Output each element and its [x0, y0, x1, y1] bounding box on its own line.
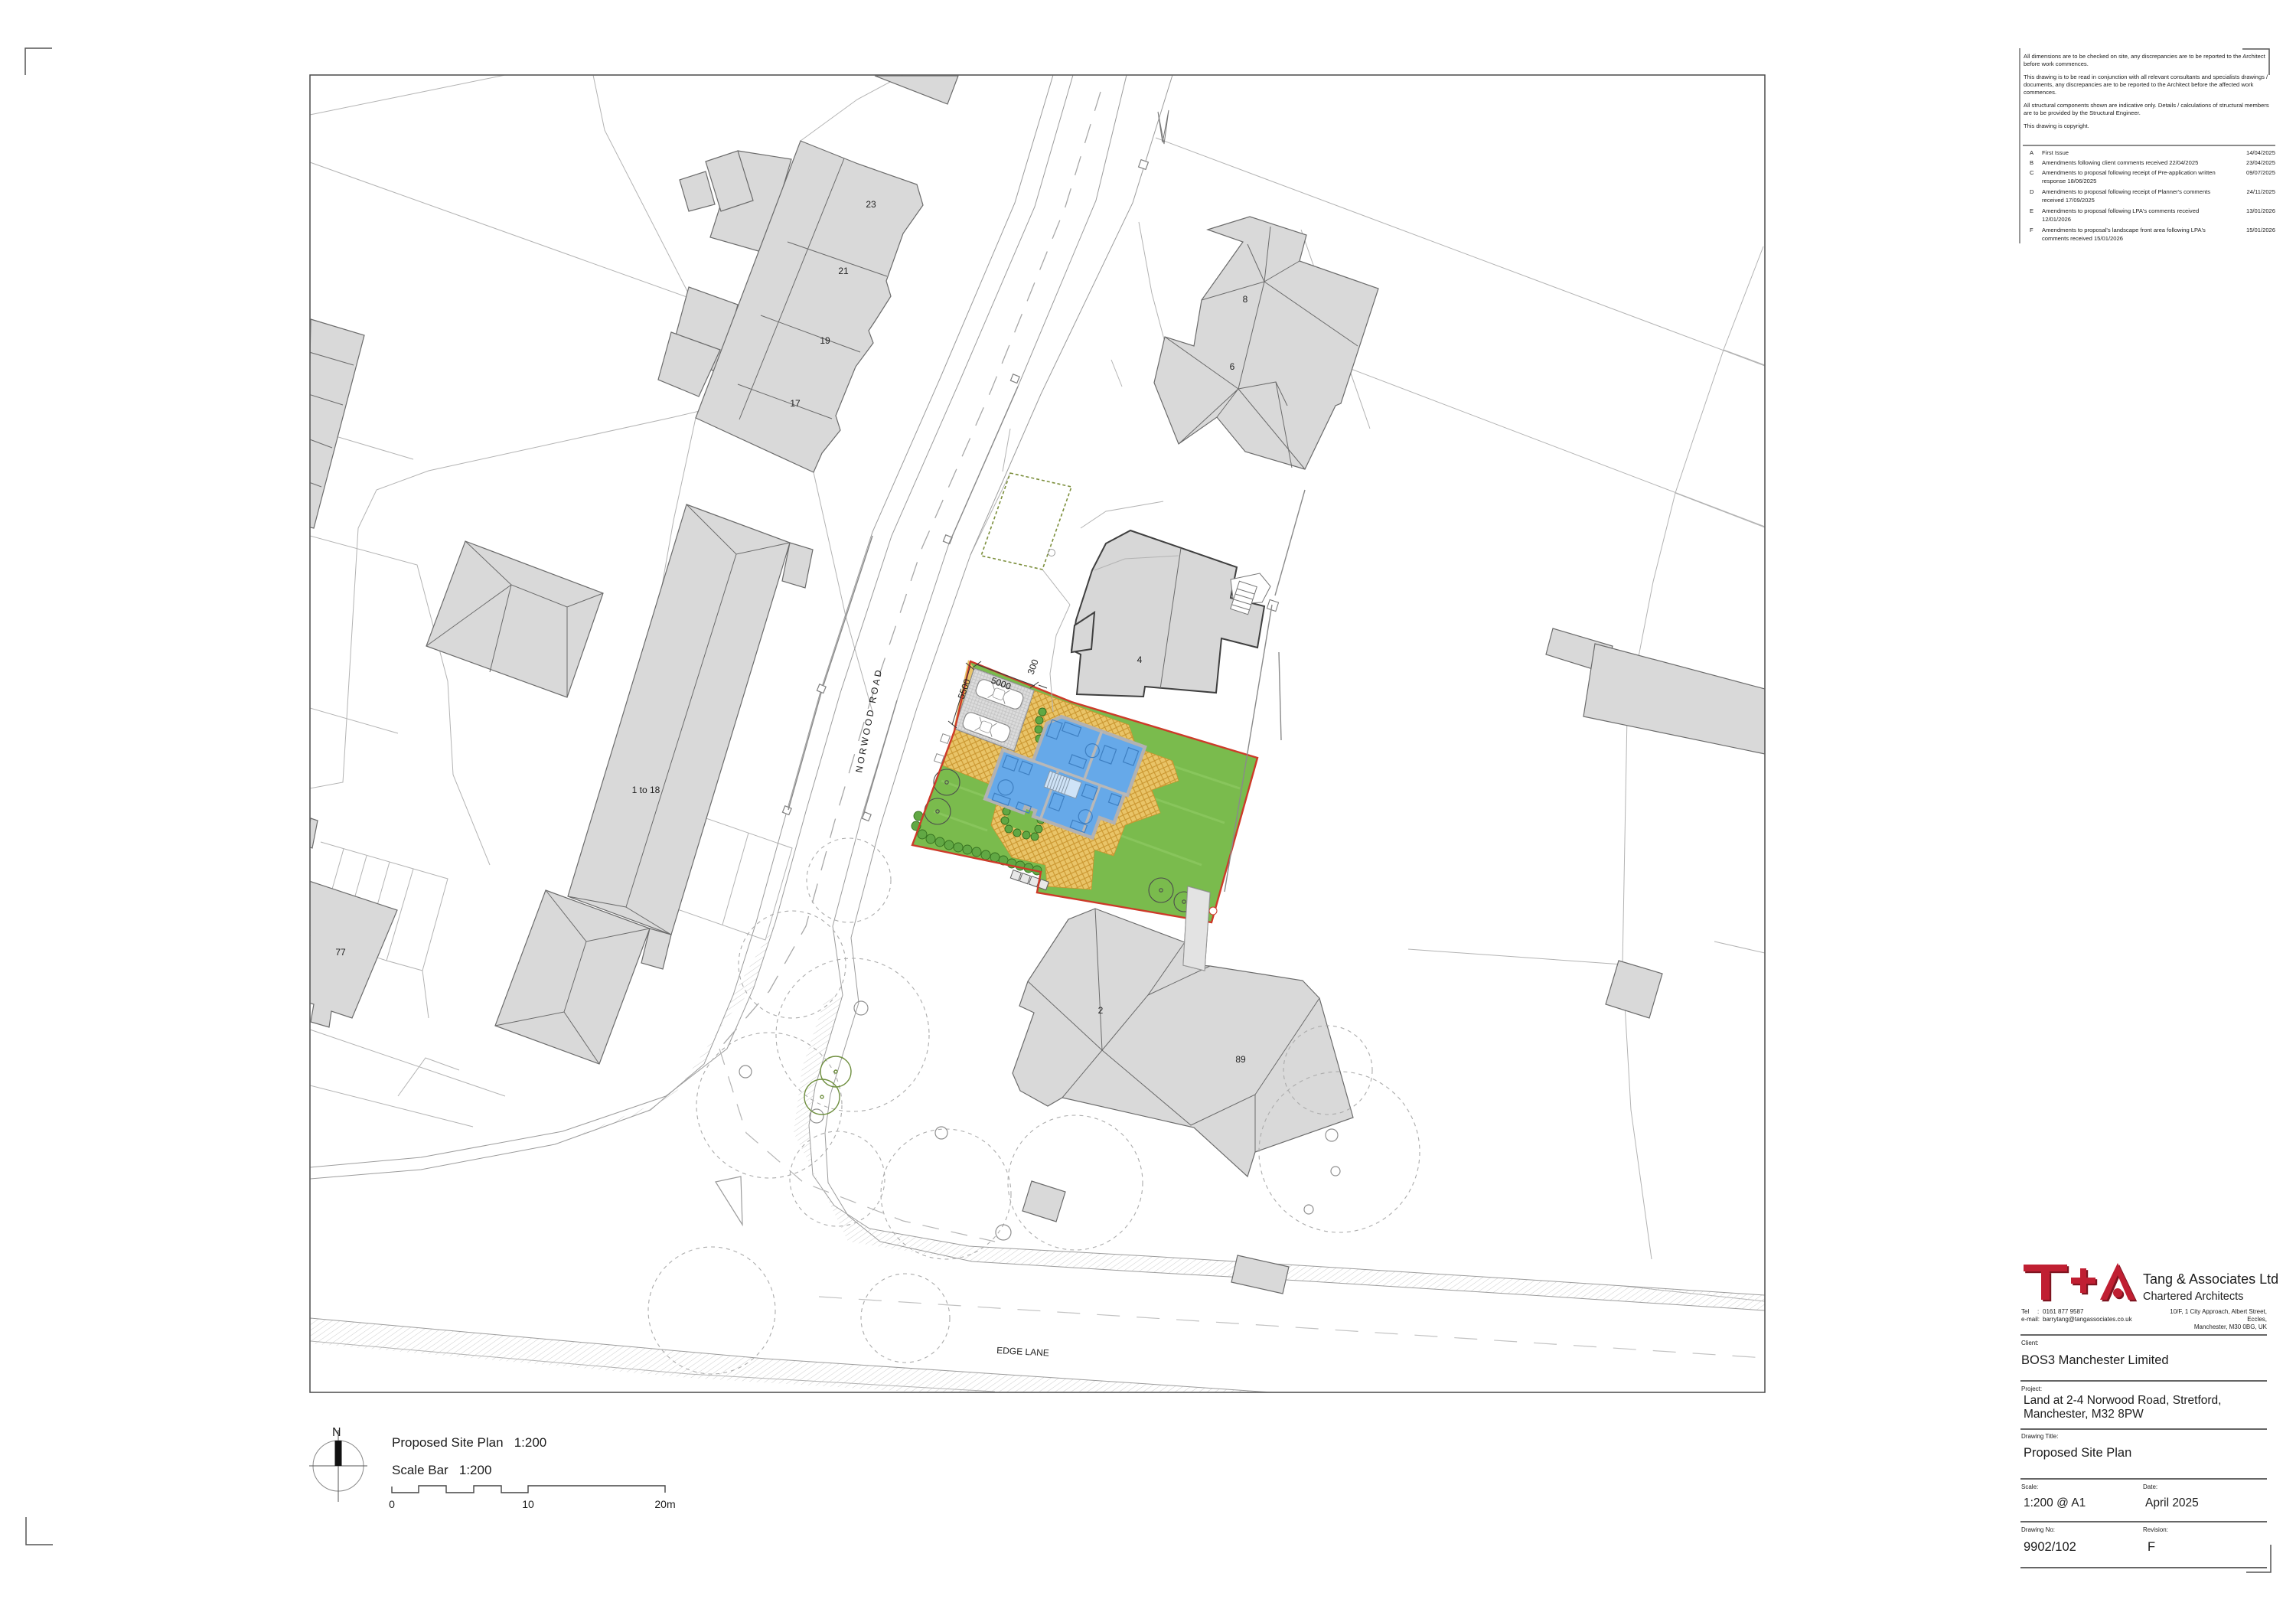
svg-text:10: 10	[522, 1498, 534, 1510]
svg-text:17: 17	[790, 398, 801, 409]
svg-text:response 18/06/2025: response 18/06/2025	[2042, 178, 2096, 184]
svg-text:19: 19	[820, 335, 830, 346]
svg-text:Land at 2-4 Norwood Road, Stre: Land at 2-4 Norwood Road, Stretford,	[2024, 1394, 2221, 1407]
svg-text:e-mail:: e-mail:	[2021, 1316, 2040, 1323]
svg-text:8: 8	[1243, 294, 1248, 305]
svg-text:Proposed Site Plan 1:200: Proposed Site Plan 1:200	[392, 1435, 546, 1450]
svg-text:are to be provided by the Stru: are to be provided by the Structural Eng…	[2024, 109, 2141, 116]
svg-text:commences.: commences.	[2024, 89, 2056, 96]
svg-text:0: 0	[389, 1498, 395, 1510]
svg-text:13/01/2026: 13/01/2026	[2246, 207, 2275, 214]
svg-text:6: 6	[1230, 361, 1235, 372]
svg-text:14/04/2025: 14/04/2025	[2246, 149, 2275, 156]
svg-text:All structural components show: All structural components shown are indi…	[2024, 102, 2269, 109]
svg-text:12/01/2026: 12/01/2026	[2042, 216, 2071, 223]
svg-text:Chartered Architects: Chartered Architects	[2143, 1291, 2243, 1303]
svg-text::: :	[2037, 1308, 2039, 1315]
svg-text:21: 21	[838, 266, 849, 276]
svg-text:Drawing Title:: Drawing Title:	[2021, 1433, 2058, 1440]
svg-text:10/F, 1 City Approach, Albert: 10/F, 1 City Approach, Albert Street,	[2170, 1308, 2267, 1315]
svg-text:F: F	[2030, 227, 2033, 233]
svg-text:23: 23	[866, 199, 876, 210]
svg-text:Drawing No:: Drawing No:	[2021, 1526, 2055, 1533]
svg-text:20m: 20m	[654, 1498, 675, 1510]
svg-text:documents, any discrepancies a: documents, any discrepancies are to be r…	[2024, 81, 2254, 88]
svg-text:All dimensions are to be check: All dimensions are to be checked on site…	[2024, 53, 2266, 60]
svg-text:Eccles,: Eccles,	[2247, 1316, 2267, 1323]
svg-text:B: B	[2030, 159, 2033, 166]
svg-text:1:200 @ A1: 1:200 @ A1	[2024, 1496, 2086, 1509]
svg-text:1 to 18: 1 to 18	[632, 785, 660, 795]
svg-text:Manchester, M30 0BG, UK: Manchester, M30 0BG, UK	[2194, 1323, 2268, 1330]
svg-text:77: 77	[335, 947, 346, 958]
svg-text:Revision:: Revision:	[2143, 1526, 2168, 1533]
svg-text:F: F	[2148, 1540, 2155, 1554]
svg-text:D: D	[2030, 188, 2034, 195]
svg-text:15/01/2026: 15/01/2026	[2246, 227, 2275, 233]
svg-text:4: 4	[1137, 654, 1143, 665]
svg-text:Amendments to proposal's lands: Amendments to proposal's landscape front…	[2042, 227, 2206, 233]
svg-text:23/04/2025: 23/04/2025	[2246, 159, 2275, 166]
svg-text:First Issue: First Issue	[2042, 149, 2069, 156]
svg-text:Client:: Client:	[2021, 1340, 2039, 1346]
svg-text:9902/102: 9902/102	[2024, 1540, 2076, 1554]
svg-text:Tel: Tel	[2021, 1308, 2029, 1315]
svg-text:before work commences.: before work commences.	[2024, 60, 2089, 67]
svg-text:This drawing is copyright.: This drawing is copyright.	[2024, 122, 2089, 129]
svg-text:24/11/2025: 24/11/2025	[2247, 188, 2275, 195]
svg-text:Amendments following client co: Amendments following client comments rec…	[2042, 159, 2198, 166]
svg-text:89: 89	[1235, 1054, 1246, 1065]
svg-text:Scale:: Scale:	[2021, 1483, 2038, 1490]
svg-text:09/07/2025: 09/07/2025	[2246, 169, 2275, 176]
svg-text:BOS3 Manchester Limited: BOS3 Manchester Limited	[2021, 1353, 2169, 1367]
svg-text:0161 877 9587: 0161 877 9587	[2043, 1308, 2084, 1315]
svg-text:Amendments to proposal followi: Amendments to proposal following receipt…	[2042, 188, 2210, 195]
svg-text:Amendments to proposal followi: Amendments to proposal following LPA's c…	[2042, 207, 2199, 214]
svg-text:April 2025: April 2025	[2145, 1496, 2199, 1509]
svg-text:Tang & Associates Ltd: Tang & Associates Ltd	[2143, 1271, 2278, 1287]
svg-text:Manchester, M32 8PW: Manchester, M32 8PW	[2024, 1408, 2144, 1421]
svg-text:Scale Bar 1:200: Scale Bar 1:200	[392, 1463, 491, 1477]
svg-text:Amendments to proposal followi: Amendments to proposal following receipt…	[2042, 169, 2216, 176]
svg-text:2: 2	[1098, 1005, 1104, 1016]
svg-text:received 17/09/2025: received 17/09/2025	[2042, 197, 2095, 204]
svg-text:Date:: Date:	[2143, 1483, 2157, 1490]
svg-text:Proposed Site Plan: Proposed Site Plan	[2024, 1446, 2131, 1460]
svg-text:C: C	[2030, 169, 2034, 176]
svg-text:This drawing is to be read in: This drawing is to be read in conjunctio…	[2024, 73, 2268, 80]
svg-text:N: N	[332, 1426, 341, 1439]
svg-text:E: E	[2030, 207, 2033, 214]
svg-text:barrytang@tangassociates.co.uk: barrytang@tangassociates.co.uk	[2043, 1316, 2133, 1323]
svg-text:Project:: Project:	[2021, 1385, 2042, 1392]
svg-text:comments received 15/01/2026: comments received 15/01/2026	[2042, 235, 2123, 242]
